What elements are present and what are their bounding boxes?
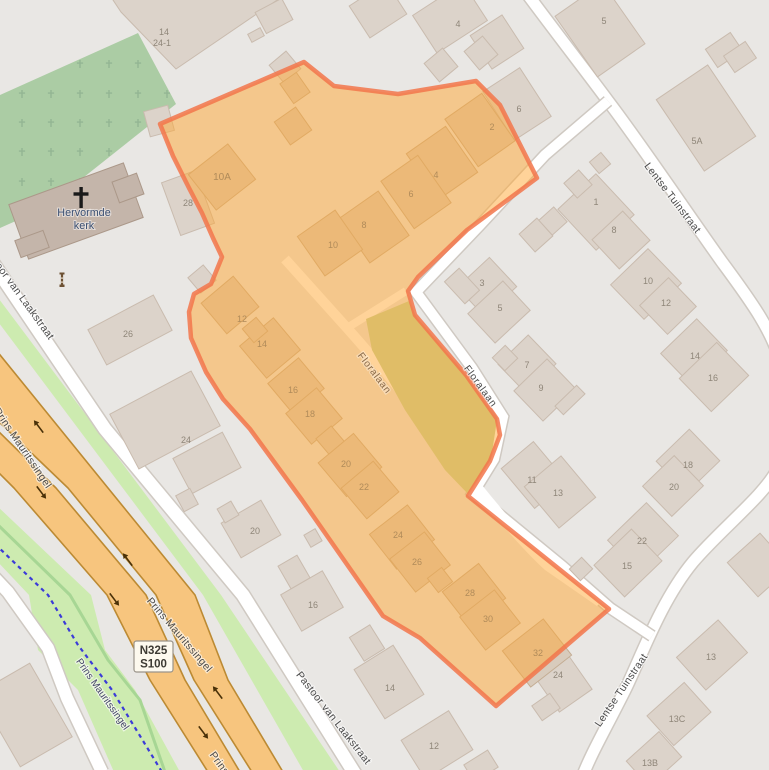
svg-text:Hervormde: Hervormde: [57, 207, 110, 219]
svg-text:28: 28: [183, 198, 193, 208]
svg-text:22: 22: [359, 482, 369, 492]
svg-text:15: 15: [622, 561, 632, 571]
svg-text:10: 10: [643, 276, 653, 286]
svg-text:5: 5: [497, 303, 502, 313]
svg-text:13B: 13B: [642, 758, 658, 768]
svg-text:8: 8: [611, 225, 616, 235]
svg-text:kerk: kerk: [74, 220, 95, 232]
svg-text:6: 6: [408, 189, 413, 199]
svg-text:13: 13: [706, 652, 716, 662]
svg-text:24-1: 24-1: [153, 38, 171, 48]
svg-text:12: 12: [429, 741, 439, 751]
svg-text:20: 20: [669, 482, 679, 492]
svg-text:14: 14: [159, 27, 169, 37]
svg-text:3: 3: [479, 278, 484, 288]
svg-text:26: 26: [123, 329, 133, 339]
svg-text:20: 20: [341, 459, 351, 469]
svg-text:S100: S100: [140, 659, 167, 671]
svg-text:10: 10: [328, 240, 338, 250]
svg-text:32: 32: [533, 648, 543, 658]
svg-text:11: 11: [527, 475, 536, 485]
svg-text:5: 5: [601, 16, 606, 26]
svg-text:1: 1: [593, 197, 598, 207]
svg-text:12: 12: [237, 314, 247, 324]
svg-text:22: 22: [637, 536, 647, 546]
svg-text:N325: N325: [140, 645, 168, 657]
svg-text:24: 24: [393, 530, 403, 540]
svg-text:13C: 13C: [669, 714, 686, 724]
svg-text:30: 30: [483, 614, 493, 624]
svg-text:13: 13: [553, 488, 563, 498]
svg-text:26: 26: [412, 557, 422, 567]
svg-text:7: 7: [524, 360, 529, 370]
svg-text:24: 24: [553, 670, 563, 680]
svg-text:8: 8: [361, 220, 366, 230]
svg-text:10A: 10A: [213, 172, 231, 183]
svg-text:16: 16: [308, 600, 318, 610]
svg-text:6: 6: [516, 104, 521, 114]
svg-text:28: 28: [465, 588, 475, 598]
svg-text:16: 16: [708, 373, 718, 383]
svg-text:12: 12: [661, 298, 671, 308]
svg-text:9: 9: [538, 383, 543, 393]
svg-text:18: 18: [305, 409, 315, 419]
svg-text:24: 24: [181, 435, 191, 445]
svg-text:14: 14: [257, 339, 267, 349]
svg-text:14: 14: [690, 351, 700, 361]
svg-text:16: 16: [288, 385, 298, 395]
svg-text:4: 4: [455, 19, 460, 29]
svg-text:4: 4: [433, 170, 438, 180]
svg-text:5A: 5A: [691, 136, 702, 146]
svg-text:18: 18: [683, 460, 693, 470]
svg-text:14: 14: [385, 683, 395, 693]
svg-text:2: 2: [489, 122, 494, 132]
svg-text:20: 20: [250, 526, 260, 536]
